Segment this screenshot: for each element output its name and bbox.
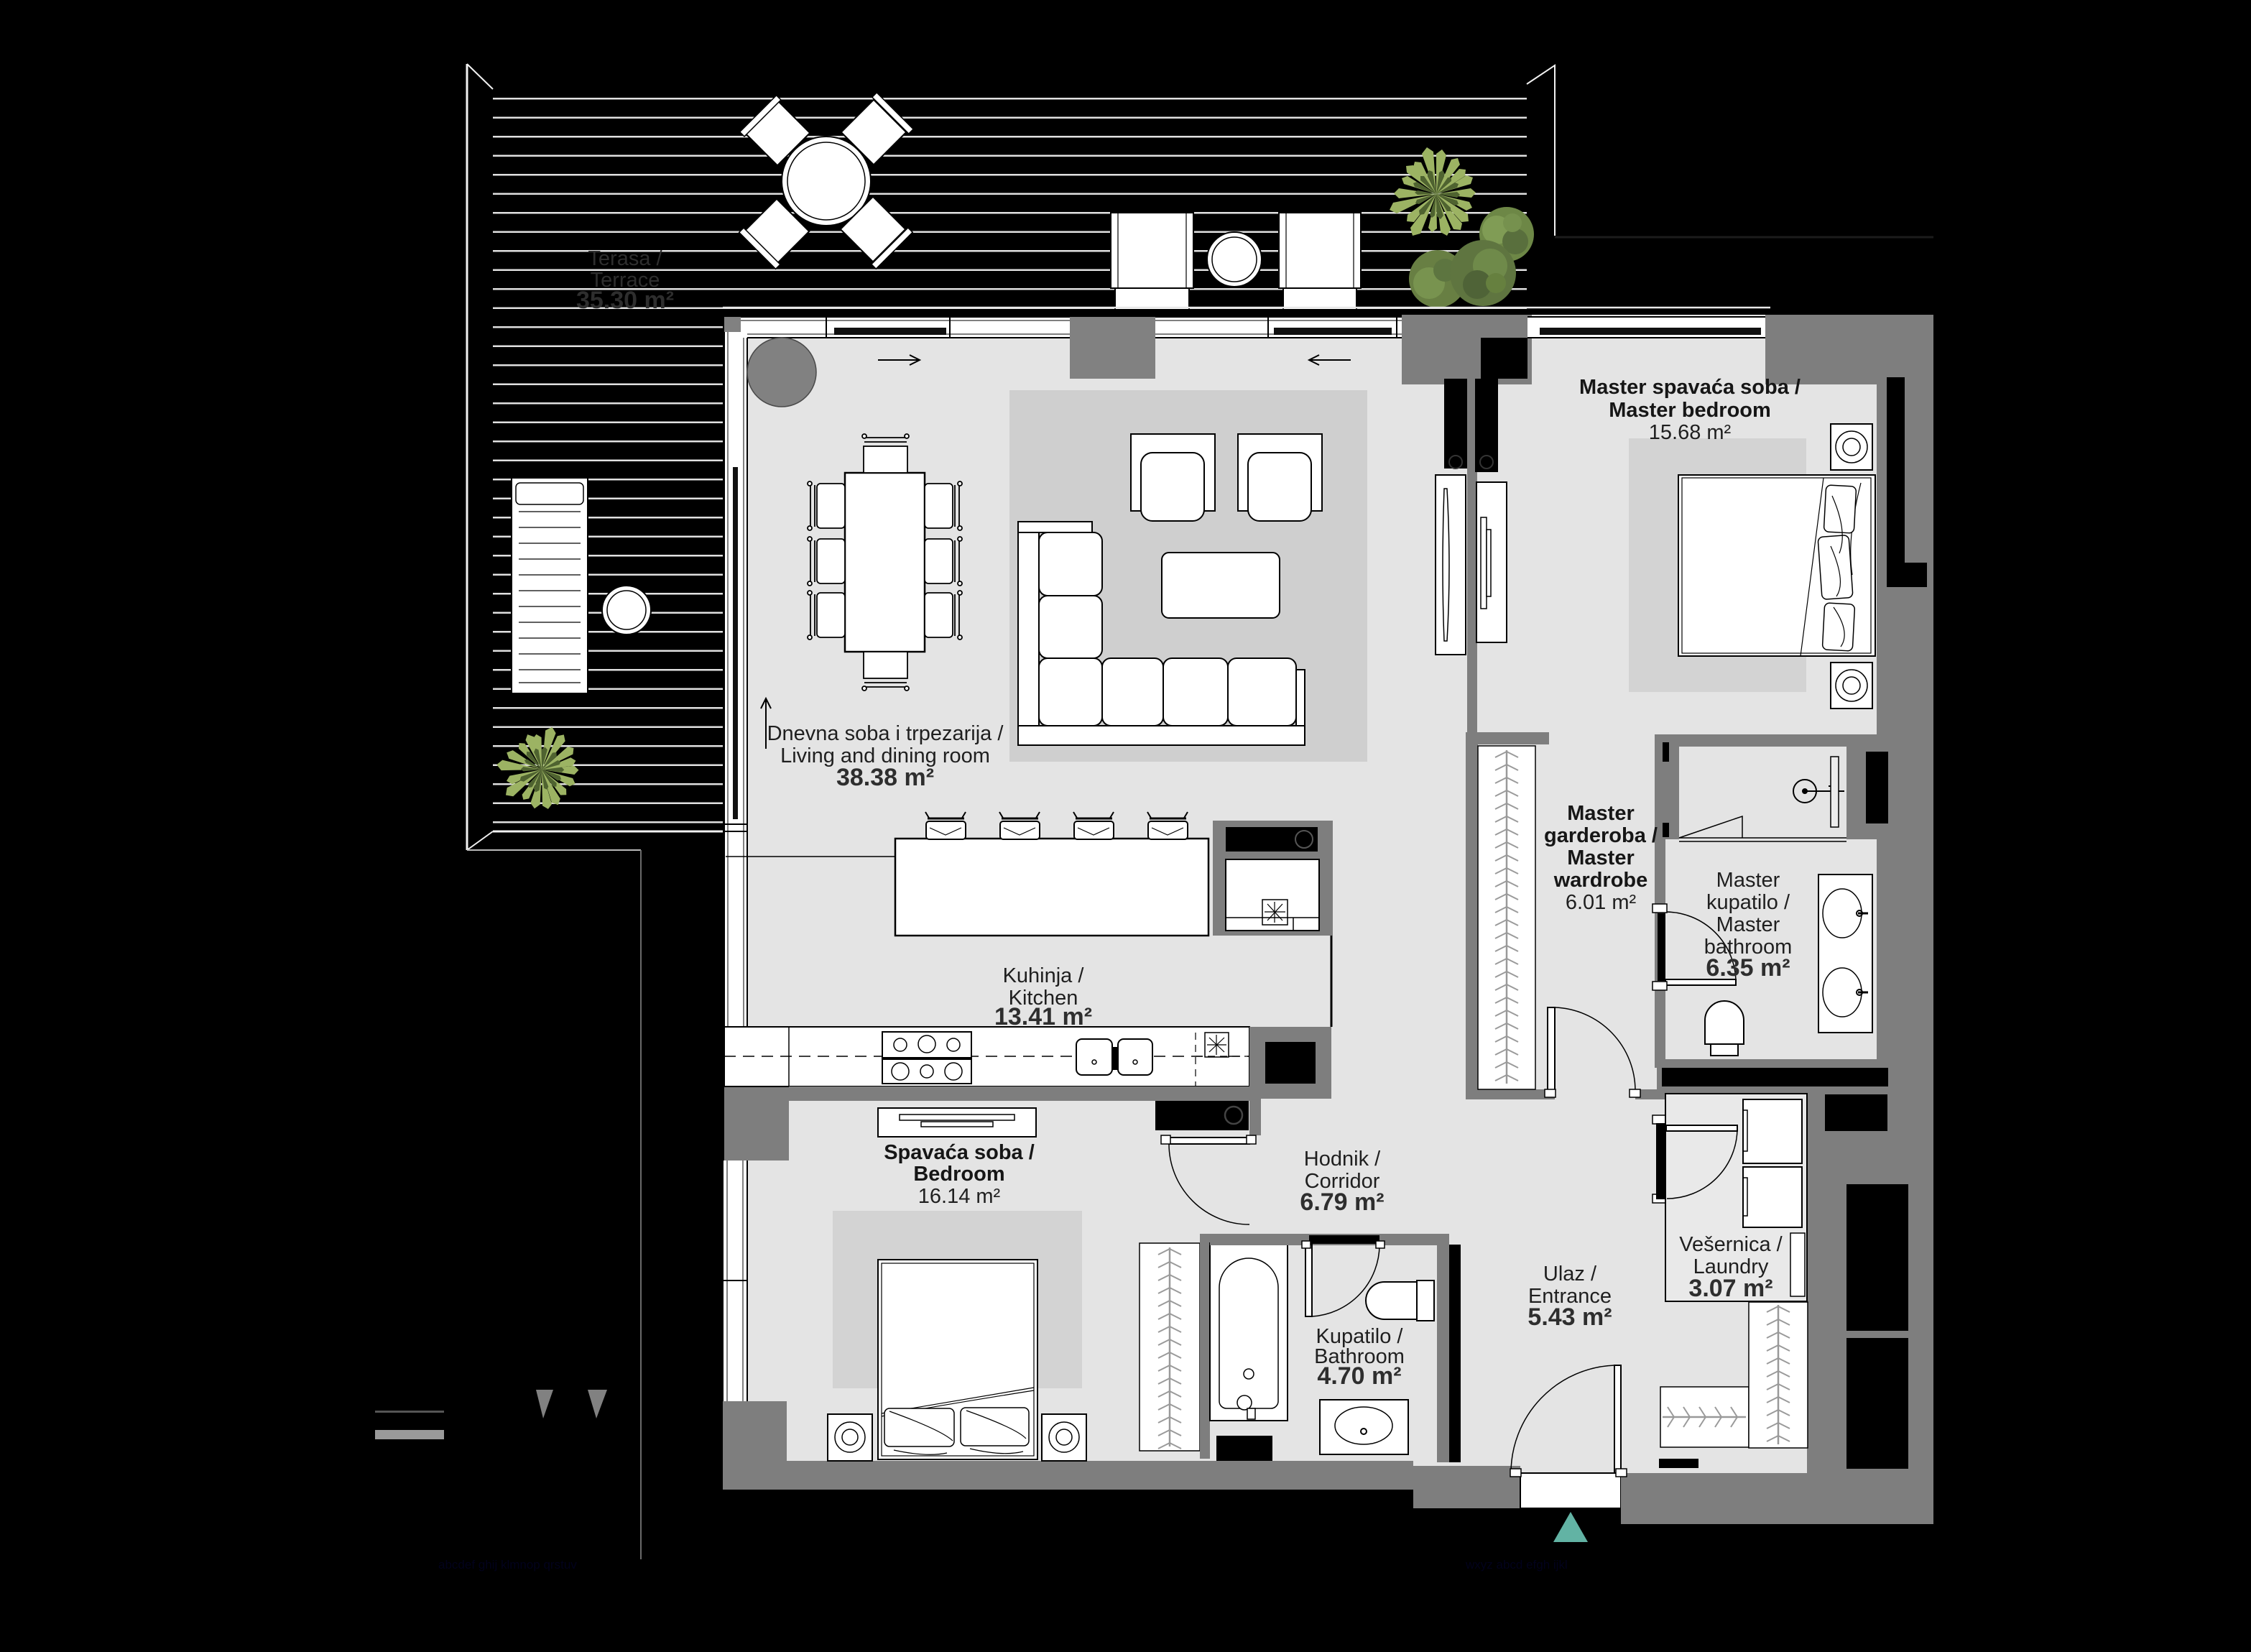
svg-text:garderoba /: garderoba / xyxy=(1544,824,1658,847)
svg-text:Hodnik /: Hodnik / xyxy=(1304,1148,1381,1171)
svg-text:wardrobe: wardrobe xyxy=(1553,869,1648,892)
svg-text:abcdef ghij klmnop qrstuv: abcdef ghij klmnop qrstuv xyxy=(438,1558,577,1572)
svg-text:3.07 m²: 3.07 m² xyxy=(1688,1275,1772,1302)
svg-text:5.43 m²: 5.43 m² xyxy=(1527,1303,1612,1331)
svg-text:38.38 m²: 38.38 m² xyxy=(836,764,934,791)
svg-text:4.70 m²: 4.70 m² xyxy=(1317,1362,1401,1390)
svg-text:Kuhinja /: Kuhinja / xyxy=(1003,964,1085,987)
svg-text:Master spavaća soba /: Master spavaća soba / xyxy=(1579,376,1801,399)
svg-text:Master: Master xyxy=(1716,913,1780,936)
svg-text:35.30 m²: 35.30 m² xyxy=(576,287,674,314)
svg-text:Ulaz /: Ulaz / xyxy=(1543,1263,1597,1286)
svg-text:Dnevna soba i trpezarija /: Dnevna soba i trpezarija / xyxy=(767,722,1004,745)
svg-text:Vešernica /: Vešernica / xyxy=(1679,1233,1783,1256)
svg-text:kupatilo /: kupatilo / xyxy=(1706,891,1790,914)
svg-text:Bedroom: Bedroom xyxy=(913,1163,1004,1186)
svg-text:6.35 m²: 6.35 m² xyxy=(1706,954,1790,982)
svg-text:Master: Master xyxy=(1716,869,1780,892)
svg-text:16.14 m²: 16.14 m² xyxy=(918,1185,1001,1208)
svg-text:wxyz abcd efgh ijkl: wxyz abcd efgh ijkl xyxy=(1465,1558,1568,1572)
svg-text:Master: Master xyxy=(1567,802,1635,825)
svg-text:Master bedroom: Master bedroom xyxy=(1609,399,1771,422)
svg-text:Spavaća soba /: Spavaća soba / xyxy=(884,1141,1035,1164)
svg-text:15.68 m²: 15.68 m² xyxy=(1649,421,1732,444)
svg-text:Master: Master xyxy=(1567,846,1635,869)
svg-text:13.41 m²: 13.41 m² xyxy=(994,1003,1092,1030)
svg-text:6.01 m²: 6.01 m² xyxy=(1566,891,1637,914)
svg-text:Terasa /: Terasa / xyxy=(588,247,662,270)
svg-text:6.79 m²: 6.79 m² xyxy=(1300,1189,1384,1216)
